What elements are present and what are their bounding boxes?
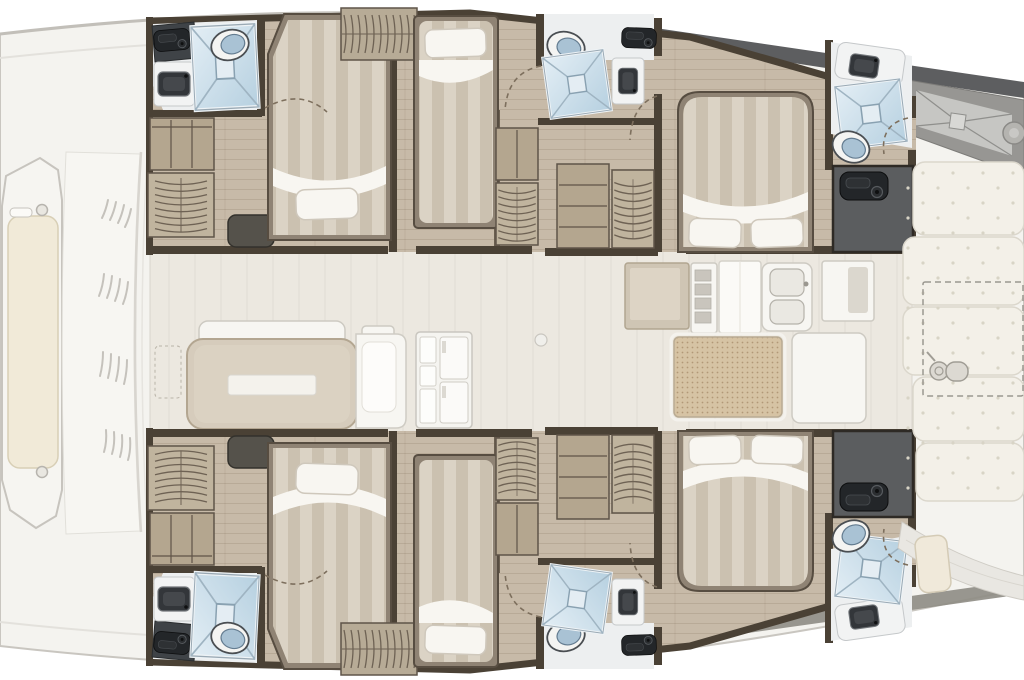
drawer [695, 270, 711, 281]
settee [356, 326, 406, 428]
double-sink [762, 263, 812, 331]
drain-plate [949, 113, 966, 130]
stove-side-counter [792, 333, 866, 423]
drawer [695, 298, 711, 309]
table-tray [228, 375, 316, 395]
stove-grate [674, 337, 782, 417]
deck-hinge [37, 205, 48, 216]
faucet-icon [804, 282, 809, 287]
drawer [695, 312, 711, 323]
round-hatch-center [1009, 128, 1019, 138]
galley-counter-pad [630, 268, 680, 320]
side-cabinet-slot [848, 267, 868, 313]
fridge-cabinet [416, 332, 472, 428]
bench-handle [10, 208, 32, 217]
deck-hinge [37, 467, 48, 478]
bench-cushion [8, 216, 58, 468]
foredeck-bench [2, 158, 62, 528]
deck-fitting [535, 334, 547, 346]
cushion-tufting [903, 162, 1024, 501]
dining-table [187, 339, 357, 429]
floor-plan-canvas [0, 0, 1024, 680]
foredeck-walkway [62, 152, 140, 534]
catamaran-floor-plan [0, 0, 1024, 680]
drawer [695, 284, 711, 295]
bench-cushions [903, 162, 1024, 501]
transom-seat-cushion [914, 534, 952, 593]
